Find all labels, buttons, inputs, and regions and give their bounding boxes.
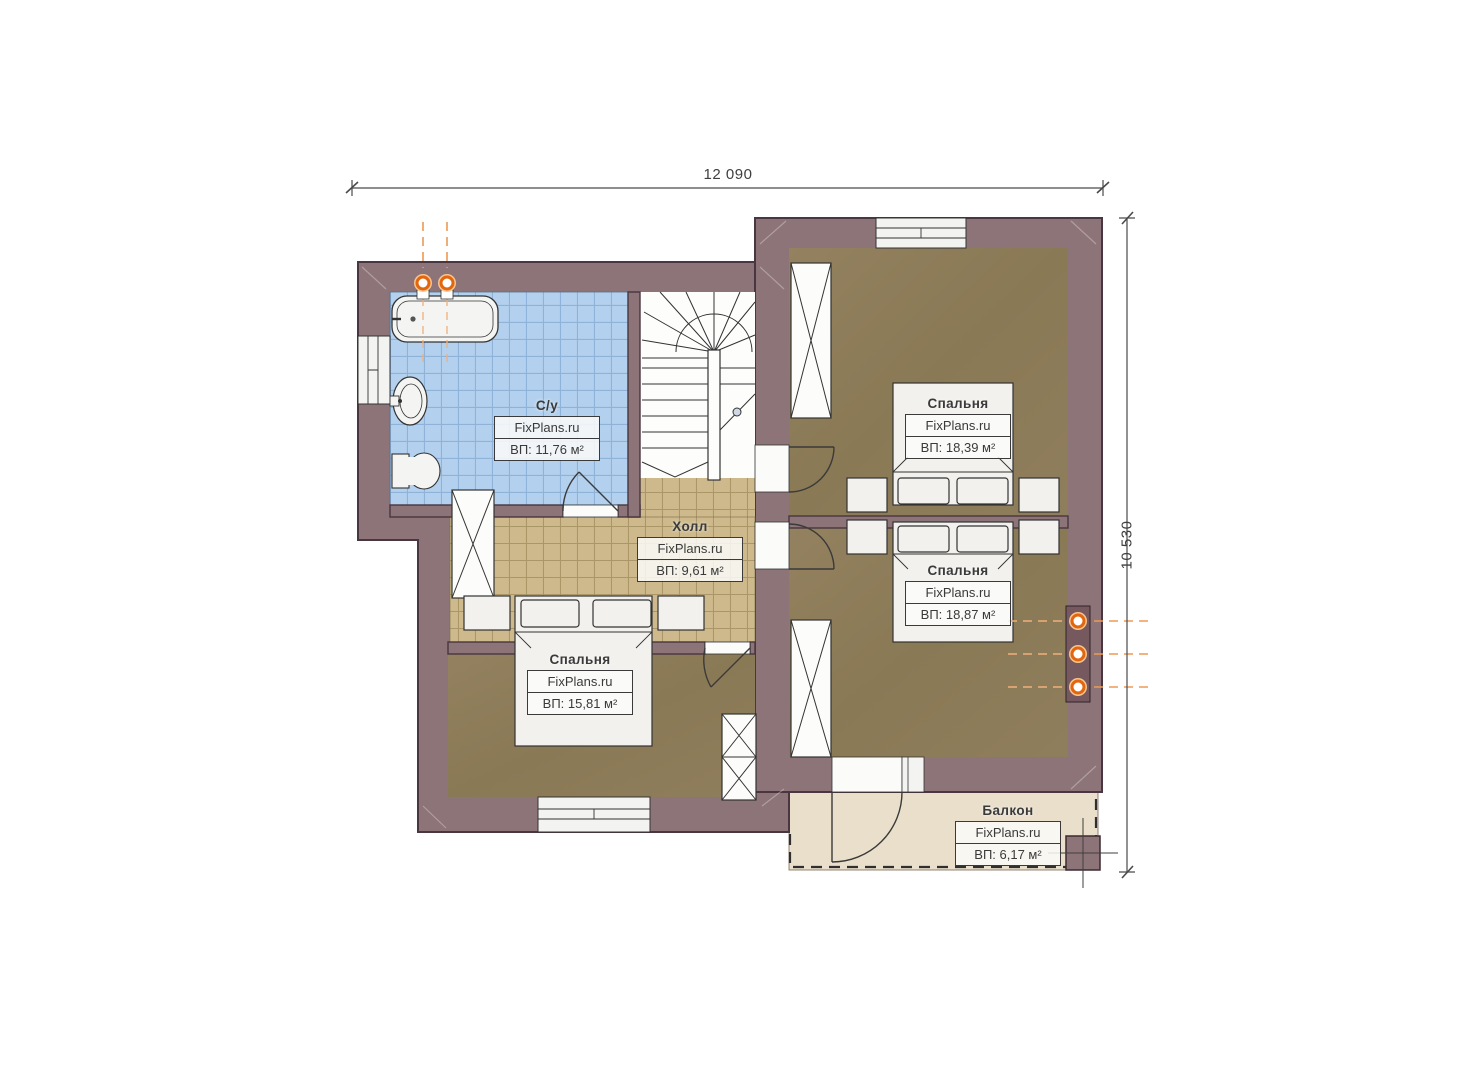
wardrobe-bedroom-top-right xyxy=(791,263,831,418)
nightstand xyxy=(1019,478,1059,512)
room-area-bedroom-top-right: ВП: 18,39 м² xyxy=(905,437,1011,459)
room-brand-bathroom: FixPlans.ru xyxy=(494,416,600,439)
stair-newel-wall xyxy=(708,350,720,480)
room-name-bedroom-top-right: Спальня xyxy=(905,396,1011,411)
room-name-balcony: Балкон xyxy=(955,803,1061,818)
room-brand-bedroom-top-right: FixPlans.ru xyxy=(905,414,1011,437)
toilet xyxy=(392,453,440,489)
stair-break-marker xyxy=(733,408,741,416)
dimension-height-label: 10 530 xyxy=(1119,521,1136,570)
room-brand-balcony: FixPlans.ru xyxy=(955,821,1061,844)
room-name-hall: Холл xyxy=(637,519,743,534)
room-label-hall: Холл FixPlans.ru ВП: 9,61 м² xyxy=(637,519,743,582)
room-area-balcony: ВП: 6,17 м² xyxy=(955,844,1061,866)
room-label-bathroom: С/у FixPlans.ru ВП: 11,76 м² xyxy=(494,398,600,461)
nightstand xyxy=(847,520,887,554)
nightstand xyxy=(1019,520,1059,554)
riser-group-right xyxy=(1008,606,1152,702)
wardrobe-hall xyxy=(452,490,494,598)
room-area-bedroom-right: ВП: 18,87 м² xyxy=(905,604,1011,626)
wardrobe-bedroom-left xyxy=(722,714,756,800)
nightstand xyxy=(464,596,510,630)
room-label-balcony: Балкон FixPlans.ru ВП: 6,17 м² xyxy=(955,803,1061,866)
room-area-bedroom-left: ВП: 15,81 м² xyxy=(527,693,633,715)
dimension-width-label: 12 090 xyxy=(704,166,753,183)
room-area-hall: ВП: 9,61 м² xyxy=(637,560,743,582)
room-name-bedroom-right: Спальня xyxy=(905,563,1011,578)
room-area-bathroom: ВП: 11,76 м² xyxy=(494,439,600,461)
room-brand-hall: FixPlans.ru xyxy=(637,537,743,560)
hall-floor-understairs xyxy=(640,478,755,517)
wardrobe-bedroom-right xyxy=(791,620,831,757)
bathroom-stair-divider xyxy=(628,292,640,517)
nightstand xyxy=(847,478,887,512)
bathtub xyxy=(392,296,498,342)
window-bathroom xyxy=(358,336,390,404)
window-bedroom-left xyxy=(538,797,650,832)
hall-bedroom-divider-stub xyxy=(750,642,755,654)
room-label-bedroom-right: Спальня FixPlans.ru ВП: 18,87 м² xyxy=(905,563,1011,626)
room-brand-bedroom-left: FixPlans.ru xyxy=(527,670,633,693)
window-top xyxy=(876,218,966,248)
nightstand xyxy=(658,596,704,630)
room-label-bedroom-top-right: Спальня FixPlans.ru ВП: 18,39 м² xyxy=(905,396,1011,459)
floor-plan-canvas: 12 090 10 530 С/у FixPlans.ru ВП: 11,76 … xyxy=(0,0,1473,1080)
room-name-bathroom: С/у xyxy=(494,398,600,413)
room-brand-bedroom-right: FixPlans.ru xyxy=(905,581,1011,604)
room-label-bedroom-left: Спальня FixPlans.ru ВП: 15,81 м² xyxy=(527,652,633,715)
room-name-bedroom-left: Спальня xyxy=(527,652,633,667)
